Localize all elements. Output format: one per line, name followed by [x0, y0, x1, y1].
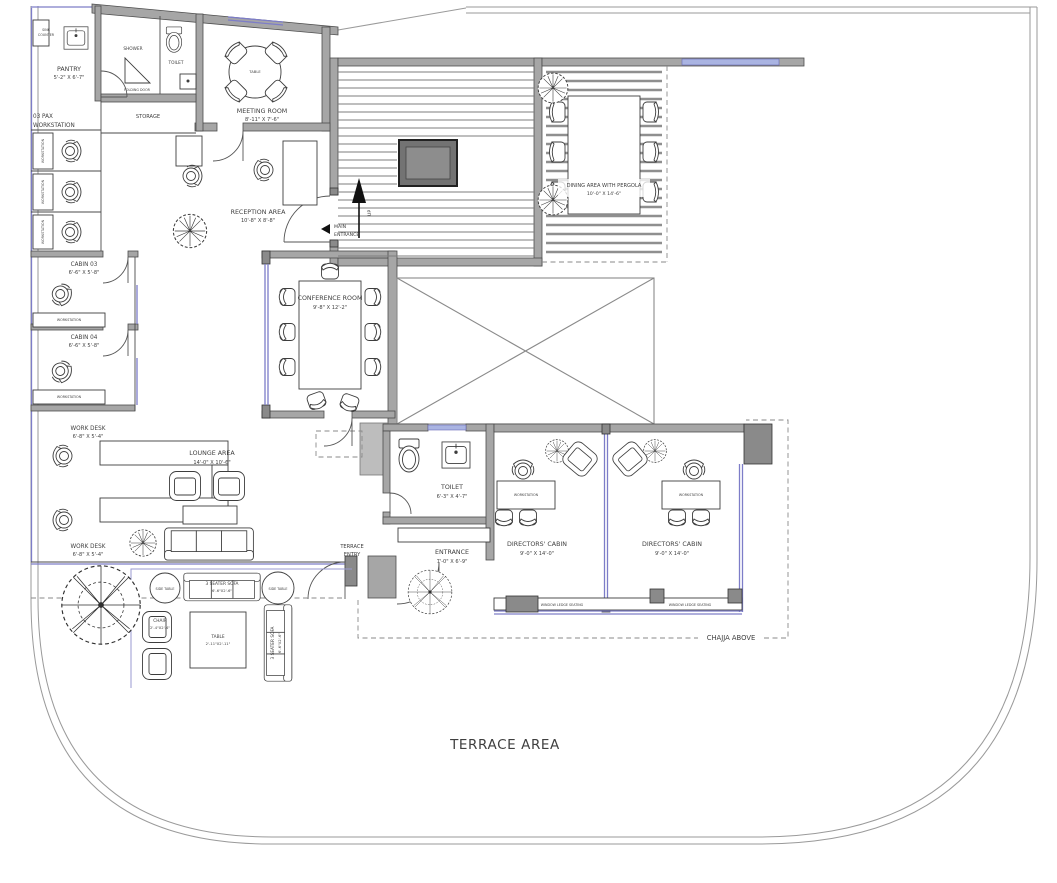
chajja-label: CHAJJA ABOVE: [707, 634, 756, 642]
room-label-cabin4: CABIN 04: [71, 335, 98, 341]
toilet-room: TOILET 6'-3" X 4'-7": [383, 424, 494, 560]
terrace-entry-label-2: ENTRY: [344, 552, 361, 558]
wall-stair-top: [338, 58, 542, 66]
room-dims-pantry: 5'-2" X 6'-7": [54, 75, 85, 81]
room-label-workdesk1: WORK DESK: [71, 426, 106, 432]
office-chair-icon: [53, 445, 72, 467]
door-pantry: [101, 71, 127, 97]
wall-cabin3-top-b: [128, 251, 138, 257]
conference-room: CONFERENCE ROOM 9'-8" X 12'-2": [265, 263, 381, 413]
pax-label-2: WORKSTATION: [33, 123, 75, 129]
conference-chair-icon: [279, 324, 295, 341]
conference-chair-icon: [365, 359, 381, 376]
conference-chair-icon: [365, 324, 381, 341]
entrance-arrow-icon: [321, 224, 330, 234]
guest-chair-icon: [669, 510, 686, 526]
plant-icon: [538, 73, 568, 103]
window-ledge-label: WINDOW LEDGE SEATING: [541, 603, 584, 607]
conference-chair-icon: [306, 391, 327, 412]
sofa-icon: [184, 573, 260, 601]
room-label-cabin3: CABIN 03: [71, 262, 98, 268]
workstation-block: 03 PAX WORKSTATION WORKSTATION WORKSTATI…: [31, 114, 101, 249]
door-meeting: [213, 131, 243, 161]
column-directors-s2: [728, 589, 742, 603]
guest-chair-icon: [520, 510, 537, 526]
door-toilet: [390, 493, 411, 514]
wall-cabin4-bottom: [31, 405, 135, 411]
outdoor-table: [190, 612, 246, 668]
sofa-dims: 6'-6"X2'-6": [278, 633, 282, 653]
basin-icon: [442, 442, 470, 468]
workstation-tag: WORKSTATION: [41, 138, 45, 163]
room-dims-directors-2: 9'-0" X 14'-0": [655, 551, 689, 557]
counter-label-1: SINK: [42, 28, 51, 32]
wall-conference-top: [262, 251, 395, 258]
room-label-pantry: PANTRY: [57, 66, 81, 73]
conference-chair-icon: [322, 263, 339, 279]
workstation-tag: WORKSTATION: [41, 179, 45, 204]
door-conference: [324, 418, 352, 446]
armchair-icon: [170, 472, 201, 501]
office-chair-icon: [683, 460, 705, 479]
office-chair-icon: [183, 165, 202, 187]
wall-conference-bottom-a: [262, 411, 324, 418]
column-directors-ne: [744, 424, 772, 464]
room-label-toilet: TOILET: [440, 484, 463, 491]
room-dims-cabin4: 6'-6" X 5'-8": [69, 343, 100, 349]
chair-label: CHAIR: [153, 618, 166, 624]
staircase: UP: [338, 72, 534, 256]
column-conf-nw: [262, 251, 270, 264]
toilet-small-label: TOILET: [167, 60, 183, 66]
wall-meeting-left: [196, 14, 203, 131]
workstation-tag: WORKSTATION: [679, 493, 704, 497]
wall-cabin3-top-a: [31, 251, 103, 257]
main-entrance-label-1: MAIN: [334, 224, 347, 230]
room-dims-dining: 10'-0" X 14'-6": [587, 191, 621, 197]
directors-cabins: WORKSTATION DIRECTORS' CABIN 9'-0" X 14'…: [494, 424, 772, 614]
workstation-tag: WORKSTATION: [514, 493, 539, 497]
window-toilet: [428, 425, 466, 430]
guest-chair-icon: [693, 510, 710, 526]
table-dims: 2'-11"X2'-11": [206, 642, 231, 646]
sofa-label: 3 SEATER SOFA: [206, 581, 239, 587]
room-dims-directors-1: 9'-0" X 14'-0": [520, 551, 554, 557]
counter-label-2: COUNTER: [38, 33, 55, 37]
office-chair-icon: [53, 509, 72, 531]
room-label-dining: DINING AREA WITH PERGOLA: [567, 183, 642, 189]
dining-chair-icon: [550, 102, 566, 122]
office-chair-icon: [62, 181, 81, 203]
conference-chair-icon: [365, 289, 381, 306]
sofa-dims: 6'-6"X2'-6": [212, 589, 232, 593]
tree-icon: [62, 566, 140, 644]
sink-counter-icon: [64, 27, 88, 49]
workstation-tag: WORKSTATION: [57, 318, 82, 322]
reception-side-desk: [176, 136, 202, 166]
wall-cabin4-top-b: [128, 324, 138, 330]
room-label-directors-1: DIRECTORS' CABIN: [507, 541, 567, 548]
cabin-03: CABIN 03 6'-6" X 5'-8" WORKSTATION: [33, 262, 105, 327]
room-label-conference: CONFERENCE ROOM: [298, 295, 363, 302]
meeting-room: TABLE MEETING ROOM 8'-11" X 7'-6": [223, 17, 288, 123]
room-label-workdesk2: WORK DESK: [71, 544, 106, 550]
sofa-icon: [165, 528, 254, 560]
side-table-label: SIDE TABLE: [156, 587, 175, 591]
workstation-tag: WORKSTATION: [57, 395, 82, 399]
window-top-right: [682, 59, 779, 65]
terrace-area-label: TERRACE AREA: [449, 737, 560, 753]
chair-dims: 2'-4"X2'-4": [150, 626, 170, 630]
coffee-table: [183, 506, 237, 524]
room-dims-workdesk1: 6'-8" X 5'-4": [73, 434, 104, 440]
terrace-entry: TERRACE ENTRY: [339, 544, 363, 558]
office-chair-icon: [62, 221, 81, 243]
office-chair-icon: [512, 460, 534, 479]
entrance-lobby: ENTRANCE 7'-0" X 6'-9": [408, 549, 469, 614]
shower-label: SHOWER: [123, 46, 142, 52]
pax-label-1: 03 PAX: [33, 114, 53, 120]
sofa-label: 3 SEATER SOFA: [270, 626, 276, 659]
meeting-table-label: TABLE: [248, 70, 261, 74]
pantry: SINK COUNTER PANTRY 5'-2" X 6'-7": [33, 20, 88, 81]
outdoor-seating: 3 SEATER SOFA 6'-6"X2'-6" SIDE TABLE SID…: [31, 566, 352, 688]
wall-conference-right: [388, 251, 397, 424]
wc-icon: [399, 439, 419, 472]
office-chair-icon: [254, 159, 273, 181]
armchair-icon: [214, 472, 245, 501]
room-label-reception: RECEPTION AREA: [231, 209, 287, 216]
up-arrow-head: [352, 178, 366, 203]
column-entrance-jamb-bottom: [330, 240, 338, 247]
guest-chair-icon: [496, 510, 513, 526]
door-cabin3: [103, 257, 128, 283]
office-chair-icon: [48, 281, 75, 309]
wall-top-slanted: [92, 4, 338, 35]
room-dims-entrance: 7'-0" X 6'-9": [437, 559, 468, 565]
column-terrace-entry: [345, 556, 357, 586]
reception-desk: [283, 141, 317, 205]
up-label: UP: [367, 210, 373, 216]
main-entrance-label-2: ENTRANCE: [334, 232, 359, 238]
wall-pantry-right: [95, 6, 101, 101]
wall-stair-left-a: [330, 58, 338, 195]
window-ledge-label: WINDOW LEDGE SEATING: [669, 603, 712, 607]
room-dims-workdesk2: 6'-8" X 5'-4": [73, 552, 104, 558]
room-dims-meeting: 8'-11" X 7'-6": [245, 117, 279, 123]
workstation-tag: WORKSTATION: [41, 219, 45, 244]
outdoor-chair-icon: [143, 649, 172, 680]
wall-conference-bottom-b: [352, 411, 395, 418]
room-dims-reception: 10'-8" X 8'-8": [241, 218, 275, 224]
column-directors-s1: [650, 589, 664, 603]
room-dims-lounge: 14'-0" X 10'-6": [193, 460, 230, 466]
bush-icon: [408, 570, 452, 614]
door-cabin4: [103, 330, 128, 356]
lounge-chair-icon: [610, 439, 650, 479]
folding-door-label: FOLDING DOOR: [124, 88, 151, 92]
room-label-lounge: LOUNGE AREA: [189, 450, 235, 457]
column-conf-sw: [262, 405, 270, 418]
ledge-cabinet: [398, 528, 490, 542]
terrace-entry-label-1: TERRACE: [339, 544, 363, 550]
dining-chair-icon: [643, 102, 659, 122]
shower-tray: [125, 58, 150, 83]
room-dims-cabin3: 6'-6" X 5'-8": [69, 270, 100, 276]
wall-meeting-bottom-b: [243, 123, 330, 131]
lift-car: [406, 147, 450, 179]
wall-stair-bottom: [338, 258, 542, 266]
shaft-dashed-box: [316, 431, 362, 457]
floor-plan-page: UP DINING AREA WITH PERGOLA 10'-0" X 14'…: [0, 0, 1057, 883]
floor-plan-canvas: UP DINING AREA WITH PERGOLA 10'-0" X 14'…: [0, 0, 1057, 883]
plant-icon: [130, 530, 156, 556]
column-directors-sw: [506, 596, 538, 612]
room-label-directors-2: DIRECTORS' CABIN: [642, 541, 702, 548]
conference-chair-icon: [279, 289, 295, 306]
void-cutout: [397, 278, 654, 424]
table-label: TABLE: [210, 634, 225, 640]
room-label-entrance: ENTRANCE: [435, 549, 469, 556]
room-label-meeting: MEETING ROOM: [237, 108, 287, 115]
office-chair-icon: [62, 140, 81, 162]
column-entrance-jamb-top: [330, 188, 338, 195]
wc-icon: [166, 27, 181, 52]
dining-chair-icon: [550, 142, 566, 162]
door-terrace-entry: [308, 562, 345, 599]
wall-terrace-entry: [368, 556, 396, 598]
wall-meeting-right: [322, 27, 330, 131]
cabin-04: CABIN 04 6'-6" X 5'-8" WORKSTATION: [33, 335, 105, 404]
room-dims-toilet: 6'-3" X 4'-7": [437, 494, 468, 500]
wall-shower-bottom: [101, 94, 196, 102]
plant-icon: [173, 214, 206, 247]
dining-chair-icon: [643, 142, 659, 162]
office-chair-icon: [48, 358, 75, 386]
dining-area: DINING AREA WITH PERGOLA 10'-0" X 14'-6": [538, 66, 667, 262]
conference-chair-icon: [279, 359, 295, 376]
conference-chair-icon: [339, 393, 360, 414]
side-table-label: SIDE TABLE: [269, 587, 288, 591]
wall-directors-top: [494, 424, 744, 432]
room-dims-conference: 9'-8" X 12'-2": [313, 305, 347, 311]
storage-label: STORAGE: [136, 114, 160, 120]
